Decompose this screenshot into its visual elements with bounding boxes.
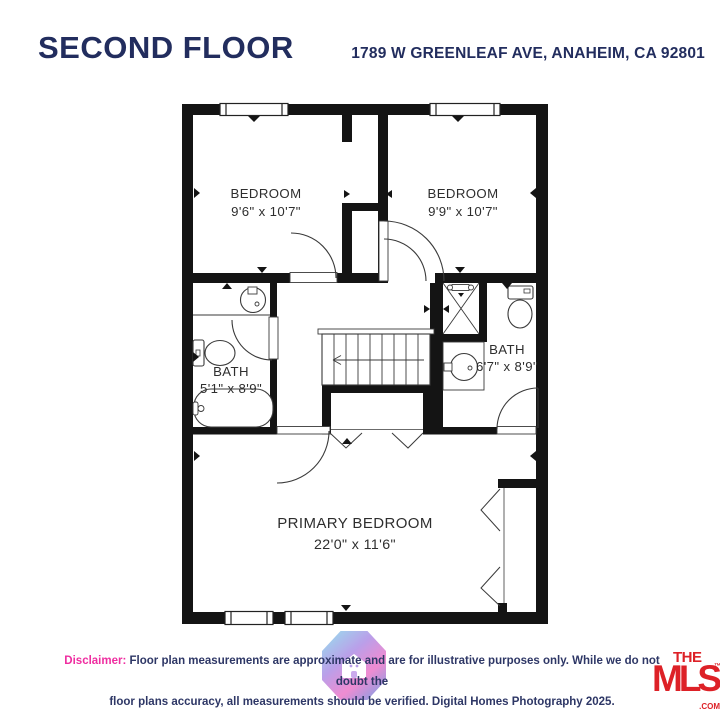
room-dimensions: 6'7" x 8'9"	[476, 359, 538, 374]
bifold-door	[481, 567, 500, 606]
door-leaf	[269, 317, 278, 359]
room-label: BEDROOM	[231, 186, 302, 201]
room-label: BATH	[213, 364, 249, 379]
door-leaf	[277, 427, 330, 435]
toilet-icon	[508, 286, 533, 328]
room-dimensions: 22'0" x 11'6"	[314, 537, 396, 553]
room-dimensions: 9'6" x 10'7"	[231, 204, 301, 219]
door-arc	[291, 233, 336, 278]
left-bath-fixtures	[193, 287, 273, 427]
mls-logo: THE MLS ™ .COM	[652, 649, 718, 713]
door-opening	[497, 427, 536, 435]
mls-logo-mls: MLS	[652, 660, 718, 697]
room-label: BEDROOM	[428, 186, 499, 201]
floor-plan: BEDROOM 9'6" x 10'7" BEDROOM 9'9" x 10'7…	[0, 0, 720, 720]
door-arc	[384, 239, 426, 281]
room-label: PRIMARY BEDROOM	[277, 515, 432, 532]
window	[225, 612, 273, 625]
disclaimer-line-1: Disclaimer: Floor plan measurements are …	[62, 651, 662, 692]
door-leaf	[379, 221, 388, 281]
door-arc	[277, 431, 329, 483]
door-leaf	[290, 273, 337, 283]
room-dimensions: 5'1" x 8'9"	[200, 381, 262, 396]
door-arc	[232, 320, 272, 360]
toilet-icon	[193, 340, 235, 366]
mls-logo-com: .COM	[699, 702, 720, 711]
window	[220, 104, 288, 116]
mls-logo-tm: ™	[714, 663, 720, 670]
door-arc	[497, 388, 538, 429]
window	[430, 104, 500, 116]
window	[285, 612, 333, 625]
sink-icon	[241, 287, 266, 313]
disclaimer-label: Disclaimer:	[64, 655, 126, 667]
staircase	[318, 329, 434, 385]
disclaimer-line-2: floor plans accuracy, all measurements s…	[62, 692, 662, 713]
room-label: BATH	[489, 342, 525, 357]
disclaimer-text: Disclaimer: Floor plan measurements are …	[62, 651, 662, 713]
room-dimensions: 9'9" x 10'7"	[428, 204, 498, 219]
bifold-door	[481, 489, 500, 531]
bifold-door	[392, 433, 423, 448]
door-openings	[269, 221, 536, 434]
